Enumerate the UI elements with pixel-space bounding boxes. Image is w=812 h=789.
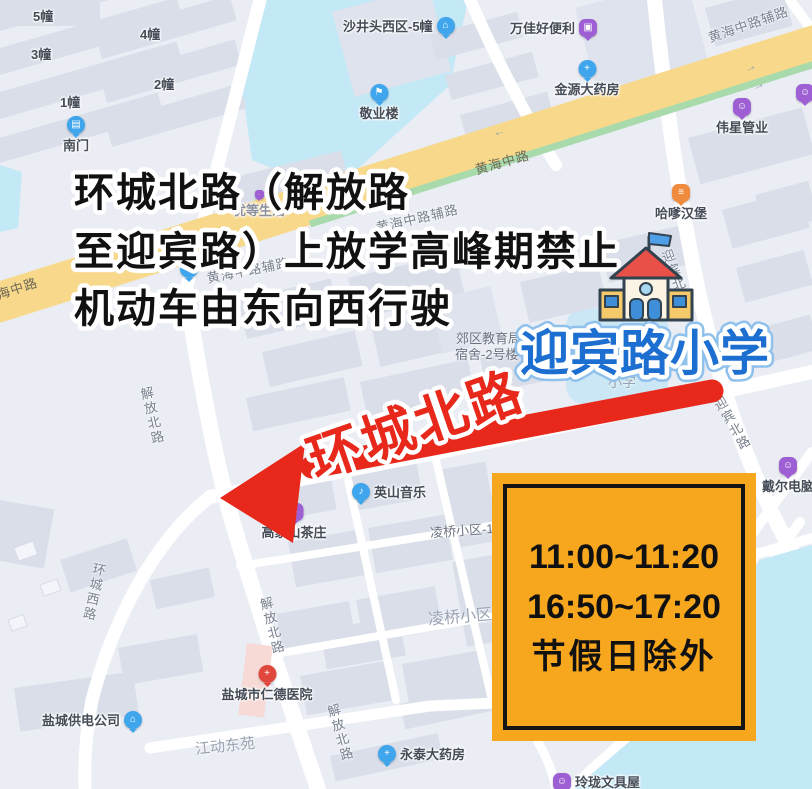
gate-icon: ▤ <box>67 116 85 134</box>
poi-gaojiashan-tea[interactable]: ☺ 高家山茶庄 <box>261 503 326 541</box>
building-number: 2幢 <box>154 74 174 93</box>
poi-yongtai-pharmacy[interactable]: + 永泰大药房 <box>378 744 465 763</box>
schedule-box-border: 11:00~11:20 16:50~17:20 节假日除外 <box>503 484 745 730</box>
building-icon: ⌂ <box>124 711 142 729</box>
poi-youdeng[interactable]: · 优等生活 <box>233 190 285 219</box>
poi-yingshan-music[interactable]: ♪ 英山音乐 <box>352 482 426 501</box>
area-label-jiaoqu-2: 宿舍-2号楼 <box>455 344 519 363</box>
poi-jingyelou[interactable]: ⚑ 敬业楼 <box>359 84 398 122</box>
dot-icon: · <box>254 190 263 199</box>
poi-jinyuan-pharmacy[interactable]: + 金源大药房 <box>554 60 619 98</box>
poi-hadia-burger[interactable]: ≡ 哈嗲汉堡 <box>655 184 707 222</box>
pill-icon: + <box>578 60 596 78</box>
schedule-note: 节假日除外 <box>532 640 717 674</box>
music-icon: ♪ <box>352 483 370 501</box>
building-number: 3幢 <box>31 44 51 63</box>
bag-icon: ☺ <box>733 98 751 116</box>
poi-wanjiahao[interactable]: 万佳好便利 ▣ <box>510 18 597 37</box>
schedule-time-1: 11:00~11:20 <box>529 540 719 574</box>
poi-rende-hospital[interactable]: + 盐城市仁德医院 <box>221 665 312 703</box>
building-number: 5幢 <box>33 6 53 25</box>
poi-linglong-stationery[interactable]: ☺ 玲珑文具屋 <box>553 772 640 789</box>
cart-icon: ▣ <box>579 19 597 37</box>
building-number: 1幢 <box>60 92 80 111</box>
poi-nanmen[interactable]: ▤ 南门 <box>63 116 89 154</box>
pill-icon: + <box>378 745 396 763</box>
bag-icon: ☺ <box>779 457 797 475</box>
area-label-xiaoxue: 小学 <box>608 372 636 392</box>
building-number: 4幢 <box>140 24 160 43</box>
flag-pin-icon: ⚑ <box>370 84 388 102</box>
bag-icon: ☺ <box>553 773 571 789</box>
bag-icon: ☺ <box>285 503 303 521</box>
hospital-icon: + <box>258 665 276 683</box>
poi-dell[interactable]: ☺ 戴尔电脑 <box>762 457 812 495</box>
poi-shajingtou[interactable]: 沙井头西区-5幢 ⌂ <box>343 16 455 35</box>
bag-icon[interactable]: ☺ <box>796 84 812 102</box>
poi-weixing[interactable]: ☺ 伟星管业 <box>716 98 768 136</box>
building-icon: ⌂ <box>437 17 455 35</box>
schedule-box: 11:00~11:20 16:50~17:20 节假日除外 <box>492 473 756 741</box>
burger-icon: ≡ <box>672 184 690 202</box>
map-screenshot: 5幢 4幢 3幢 2幢 1幢 ▤ 南门 沙井头西区-5幢 ⌂ ⚑ 敬业楼 万佳好… <box>0 0 812 789</box>
schedule-time-2: 16:50~17:20 <box>527 590 721 624</box>
poi-power-company[interactable]: 盐城供电公司 ⌂ <box>42 710 142 729</box>
bus-stop-icon[interactable]: ▭ <box>180 260 198 278</box>
